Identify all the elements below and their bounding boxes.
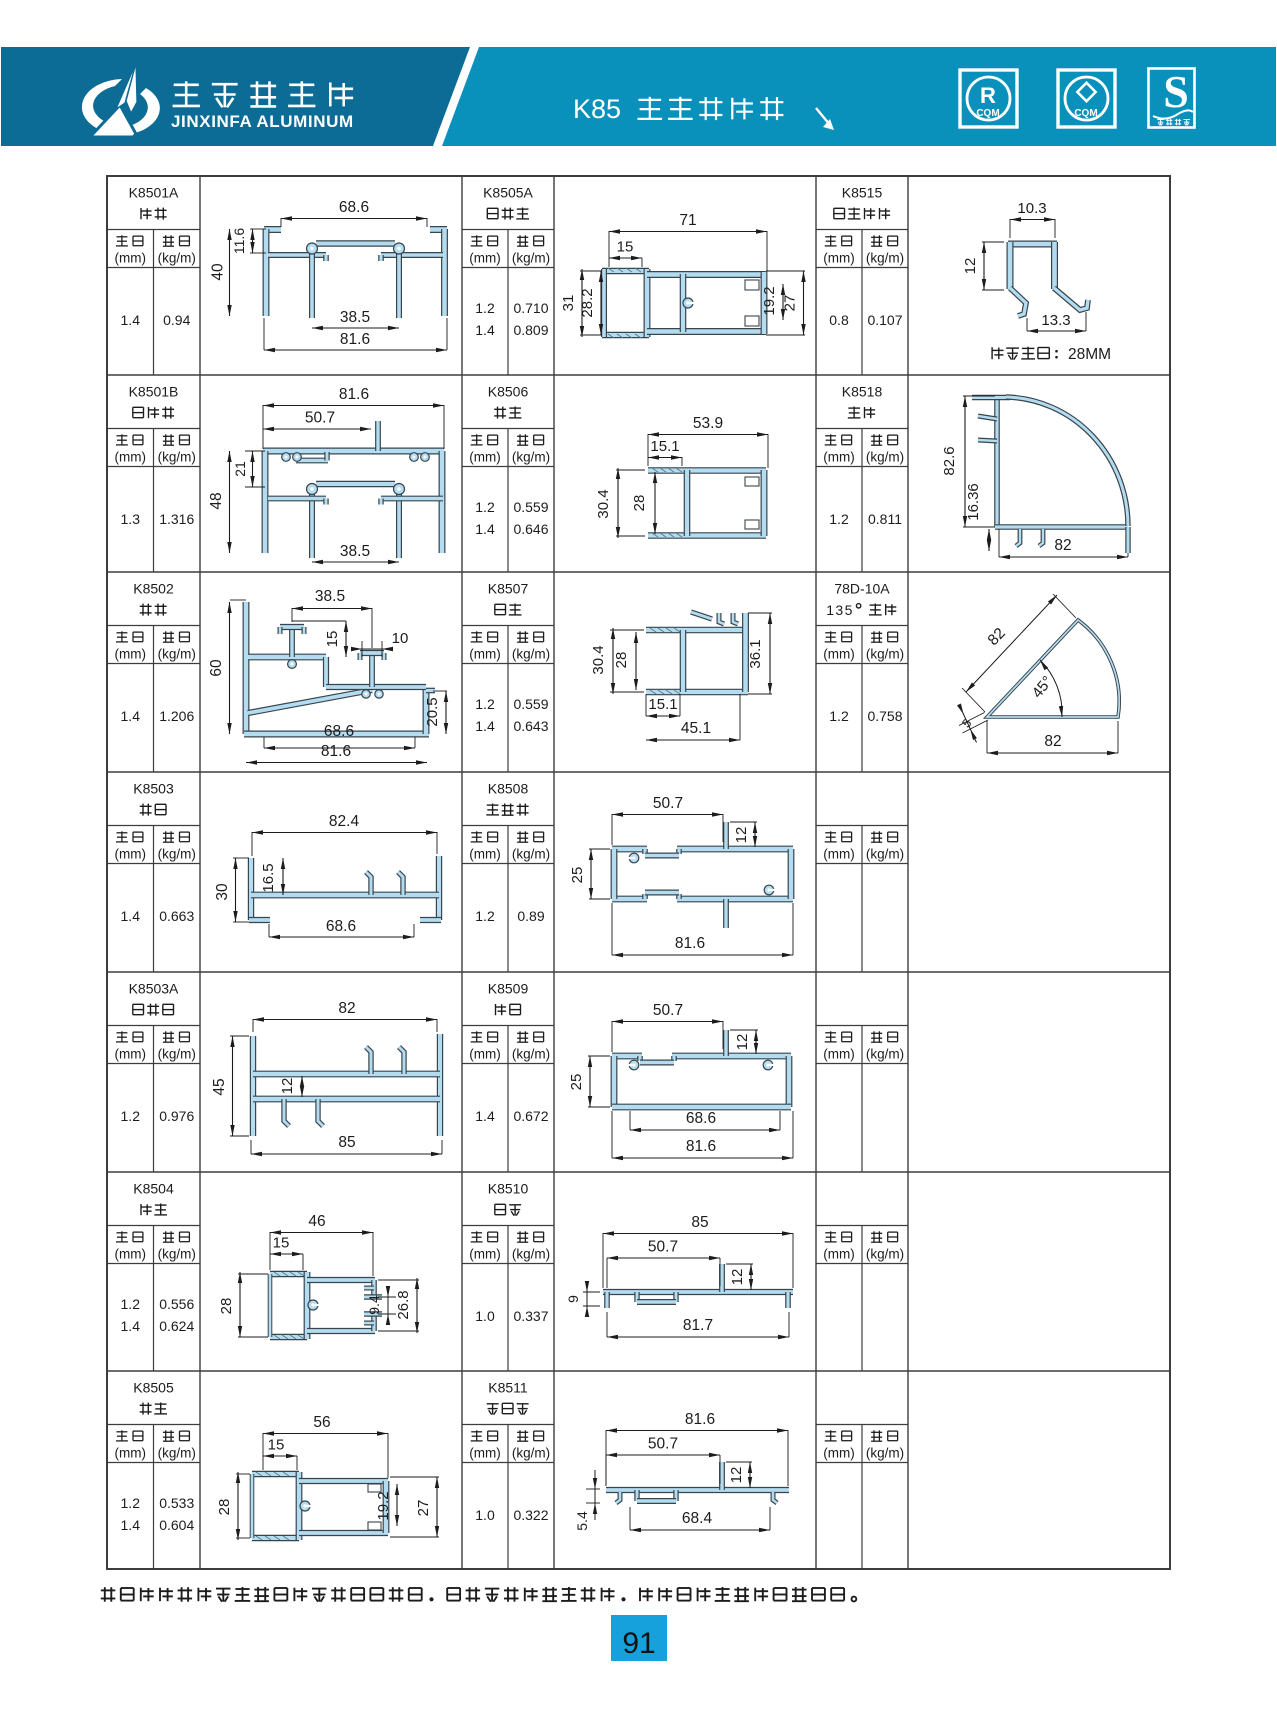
svg-text:(kg/m): (kg/m): [512, 847, 550, 862]
svg-text:(mm): (mm): [115, 450, 146, 465]
svg-text:45°: 45°: [1029, 673, 1056, 701]
svg-text:60: 60: [208, 659, 225, 677]
svg-text:K8508: K8508: [488, 781, 529, 797]
svg-text:(kg/m): (kg/m): [512, 647, 550, 662]
svg-text:20.5: 20.5: [424, 697, 441, 726]
svg-text:(mm): (mm): [823, 1446, 854, 1461]
svg-text:15: 15: [273, 1235, 290, 1252]
svg-text:0.89: 0.89: [517, 908, 544, 924]
svg-text:K8503: K8503: [133, 781, 174, 797]
svg-text:82: 82: [1054, 537, 1071, 554]
svg-text:0.809: 0.809: [513, 322, 548, 338]
svg-text:82.4: 82.4: [329, 813, 360, 830]
svg-text:31: 31: [560, 295, 577, 312]
svg-text:19.2: 19.2: [761, 286, 778, 315]
svg-text:30: 30: [214, 883, 231, 901]
svg-text:28: 28: [613, 652, 630, 669]
svg-text:56: 56: [313, 1414, 330, 1431]
svg-text:48: 48: [208, 492, 225, 509]
svg-text:25: 25: [568, 1074, 585, 1091]
svg-text:(kg/m): (kg/m): [158, 1047, 196, 1062]
svg-text:K8504: K8504: [133, 1181, 174, 1197]
svg-text:(kg/m): (kg/m): [512, 1047, 550, 1062]
svg-text:0.559: 0.559: [513, 499, 548, 515]
svg-text:0.811: 0.811: [868, 511, 902, 527]
svg-text:15.1: 15.1: [648, 696, 677, 713]
svg-text:3: 3: [835, 602, 843, 618]
svg-text:0.556: 0.556: [159, 1296, 194, 1312]
svg-text:1.2: 1.2: [829, 708, 849, 724]
svg-text:(mm): (mm): [469, 450, 500, 465]
svg-text:50.7: 50.7: [305, 410, 335, 427]
svg-text:(kg/m): (kg/m): [866, 1247, 904, 1262]
svg-text:0.643: 0.643: [513, 718, 548, 734]
svg-text:(kg/m): (kg/m): [866, 647, 904, 662]
svg-text:1.4: 1.4: [121, 1318, 141, 1334]
svg-text:38.5: 38.5: [340, 309, 370, 326]
svg-text:(kg/m): (kg/m): [866, 847, 904, 862]
svg-text:0.94: 0.94: [163, 312, 190, 328]
svg-text:1.2: 1.2: [475, 499, 495, 515]
svg-text:(mm): (mm): [823, 847, 854, 862]
svg-text:(kg/m): (kg/m): [512, 1446, 550, 1461]
svg-text:1.4: 1.4: [475, 322, 495, 338]
svg-text:1.0: 1.0: [475, 1308, 495, 1324]
svg-text:68.6: 68.6: [339, 199, 369, 216]
svg-text:(kg/m): (kg/m): [866, 450, 904, 465]
svg-text:11.6: 11.6: [231, 228, 247, 254]
svg-text:K8509: K8509: [488, 981, 529, 997]
svg-text:85: 85: [338, 1134, 355, 1151]
svg-text:(kg/m): (kg/m): [158, 1247, 196, 1262]
svg-text:K8515: K8515: [842, 185, 883, 201]
svg-text:K8506: K8506: [488, 384, 529, 400]
svg-text:78D-10A: 78D-10A: [834, 581, 890, 597]
svg-text:(mm): (mm): [823, 251, 854, 266]
svg-text:81.6: 81.6: [675, 935, 705, 952]
svg-text:S: S: [1163, 66, 1189, 117]
svg-text:45: 45: [211, 1078, 228, 1095]
svg-text:68.4: 68.4: [682, 1510, 713, 1527]
svg-text:K8510: K8510: [488, 1181, 529, 1197]
svg-text:(mm): (mm): [469, 647, 500, 662]
svg-text:12: 12: [728, 1467, 745, 1484]
svg-text:27: 27: [782, 295, 799, 312]
svg-text:(mm): (mm): [469, 1446, 500, 1461]
svg-text:50.7: 50.7: [648, 1436, 678, 1453]
svg-text:10.3: 10.3: [1017, 200, 1046, 217]
svg-text:K8511: K8511: [488, 1380, 528, 1396]
svg-text:(mm): (mm): [115, 847, 146, 862]
svg-text:5: 5: [845, 602, 853, 618]
svg-text:0.533: 0.533: [159, 1495, 194, 1511]
svg-text:(kg/m): (kg/m): [866, 1446, 904, 1461]
svg-text:0.663: 0.663: [159, 908, 194, 924]
svg-text:1.4: 1.4: [121, 708, 141, 724]
svg-text:CQM: CQM: [976, 108, 999, 119]
svg-text:(mm): (mm): [823, 1047, 854, 1062]
svg-text:30.4: 30.4: [595, 489, 612, 518]
svg-text:(mm): (mm): [115, 1047, 146, 1062]
svg-text:36.1: 36.1: [747, 639, 764, 668]
svg-text:82: 82: [338, 1000, 355, 1017]
svg-text:(mm): (mm): [115, 251, 146, 266]
svg-text:28: 28: [631, 495, 648, 512]
svg-text:82: 82: [1044, 733, 1061, 750]
svg-text:K8501A: K8501A: [129, 185, 179, 201]
svg-text:0.322: 0.322: [513, 1507, 548, 1523]
svg-text:81.6: 81.6: [321, 743, 351, 760]
svg-text:15: 15: [268, 1437, 285, 1454]
svg-text:28: 28: [218, 1298, 235, 1315]
svg-text:91: 91: [622, 1627, 655, 1660]
svg-text:68.6: 68.6: [686, 1110, 716, 1127]
svg-text:1.2: 1.2: [475, 908, 495, 924]
svg-text:26.8: 26.8: [395, 1290, 412, 1319]
svg-text:K8505A: K8505A: [483, 185, 533, 201]
svg-text:1.4: 1.4: [475, 1108, 495, 1124]
svg-text:15: 15: [324, 631, 341, 648]
svg-text:1.2: 1.2: [121, 1495, 141, 1511]
svg-text:(mm): (mm): [115, 1446, 146, 1461]
svg-text:0.624: 0.624: [159, 1318, 194, 1334]
svg-text:1.0: 1.0: [475, 1507, 495, 1523]
svg-text:R: R: [980, 83, 996, 108]
svg-text:(mm): (mm): [115, 1247, 146, 1262]
svg-text:12: 12: [962, 258, 979, 275]
svg-text:(kg/m): (kg/m): [158, 450, 196, 465]
svg-text:(kg/m): (kg/m): [512, 1247, 550, 1262]
svg-text:1.3: 1.3: [121, 511, 141, 527]
svg-text:40: 40: [210, 263, 227, 281]
svg-text:(mm): (mm): [469, 1247, 500, 1262]
svg-text:45.1: 45.1: [681, 720, 711, 737]
svg-text:K8505: K8505: [133, 1380, 174, 1396]
svg-text:27: 27: [415, 1500, 432, 1517]
svg-text:K8502: K8502: [133, 581, 174, 597]
svg-text:K85: K85: [573, 94, 621, 124]
svg-text:0.710: 0.710: [513, 300, 548, 316]
svg-text:0.337: 0.337: [513, 1308, 548, 1324]
svg-text:81.6: 81.6: [686, 1138, 716, 1155]
svg-text:1.2: 1.2: [829, 511, 849, 527]
svg-text:82: 82: [985, 625, 1009, 649]
svg-text:81.6: 81.6: [340, 331, 370, 348]
svg-text:9: 9: [565, 1295, 581, 1303]
svg-text:CQM: CQM: [1074, 108, 1097, 119]
svg-text:12: 12: [734, 1034, 751, 1051]
svg-text:5.4: 5.4: [574, 1511, 590, 1531]
svg-text:25: 25: [569, 867, 586, 884]
svg-text:K8503A: K8503A: [129, 981, 179, 997]
svg-text:0.107: 0.107: [867, 312, 902, 328]
svg-text:53.9: 53.9: [693, 415, 723, 432]
svg-text:81.6: 81.6: [339, 386, 369, 403]
svg-text:16.36: 16.36: [965, 483, 982, 521]
svg-text:1.4: 1.4: [121, 1517, 141, 1533]
svg-text:15.1: 15.1: [650, 438, 679, 455]
svg-text:1.4: 1.4: [475, 718, 495, 734]
svg-text:(mm): (mm): [469, 1047, 500, 1062]
svg-text:0.672: 0.672: [513, 1108, 548, 1124]
svg-text:0.646: 0.646: [513, 521, 548, 537]
svg-text:(kg/m): (kg/m): [158, 251, 196, 266]
svg-text:21: 21: [232, 461, 248, 477]
svg-text:15: 15: [617, 239, 634, 256]
svg-text:12: 12: [279, 1078, 296, 1095]
svg-text:30.4: 30.4: [590, 645, 607, 674]
svg-text:38.5: 38.5: [315, 588, 345, 605]
svg-text:(kg/m): (kg/m): [866, 251, 904, 266]
svg-text:1.4: 1.4: [475, 521, 495, 537]
svg-text:1: 1: [826, 602, 834, 618]
svg-text:85: 85: [691, 1214, 708, 1231]
svg-text:50.7: 50.7: [653, 795, 683, 812]
svg-text:(mm): (mm): [823, 1247, 854, 1262]
svg-text:9.4: 9.4: [366, 1295, 382, 1315]
svg-text:68.6: 68.6: [324, 723, 354, 740]
svg-text:0.604: 0.604: [159, 1517, 194, 1533]
svg-text:K8507: K8507: [488, 581, 529, 597]
svg-text:82.6: 82.6: [941, 446, 958, 475]
svg-text:46: 46: [308, 1213, 325, 1230]
svg-text:1.2: 1.2: [475, 696, 495, 712]
svg-text:1.206: 1.206: [159, 708, 194, 724]
svg-text:12: 12: [733, 827, 750, 844]
svg-text:28MM: 28MM: [1068, 346, 1111, 363]
svg-text:(kg/m): (kg/m): [512, 450, 550, 465]
svg-text:(kg/m): (kg/m): [158, 1446, 196, 1461]
svg-text:16.5: 16.5: [260, 863, 277, 892]
svg-text:1.2: 1.2: [475, 300, 495, 316]
svg-text:(mm): (mm): [823, 450, 854, 465]
svg-text:12: 12: [729, 1269, 746, 1286]
svg-text:38.5: 38.5: [340, 543, 370, 560]
svg-text:1.4: 1.4: [121, 312, 141, 328]
svg-text:(mm): (mm): [469, 847, 500, 862]
svg-text:10: 10: [392, 630, 409, 647]
svg-text:1.2: 1.2: [121, 1108, 141, 1124]
svg-text:K8501B: K8501B: [129, 384, 179, 400]
svg-text:81.6: 81.6: [685, 1411, 715, 1428]
svg-text:71: 71: [679, 212, 696, 229]
svg-text:(mm): (mm): [115, 647, 146, 662]
svg-text:50.7: 50.7: [648, 1239, 678, 1256]
svg-text:28.2: 28.2: [579, 288, 596, 317]
svg-text:0.559: 0.559: [513, 696, 548, 712]
svg-text:K8518: K8518: [842, 384, 883, 400]
svg-text:1.316: 1.316: [159, 511, 194, 527]
svg-text:(kg/m): (kg/m): [158, 647, 196, 662]
svg-text:0.976: 0.976: [159, 1108, 194, 1124]
svg-text:(kg/m): (kg/m): [158, 847, 196, 862]
svg-text:50.7: 50.7: [653, 1002, 683, 1019]
svg-text:81.7: 81.7: [683, 1317, 713, 1334]
svg-text:(kg/m): (kg/m): [512, 251, 550, 266]
svg-text:28: 28: [216, 1499, 233, 1516]
svg-text:0.8: 0.8: [829, 312, 849, 328]
svg-text:1.4: 1.4: [121, 908, 141, 924]
svg-text:JINXINFA ALUMINUM: JINXINFA ALUMINUM: [171, 112, 354, 131]
svg-text:19.2: 19.2: [375, 1491, 392, 1520]
svg-text:(kg/m): (kg/m): [866, 1047, 904, 1062]
svg-text:13.3: 13.3: [1041, 312, 1070, 329]
svg-text:(mm): (mm): [469, 251, 500, 266]
svg-text:(mm): (mm): [823, 647, 854, 662]
svg-text:1.2: 1.2: [121, 1296, 141, 1312]
svg-text:0.758: 0.758: [867, 708, 902, 724]
svg-text:68.6: 68.6: [326, 918, 356, 935]
